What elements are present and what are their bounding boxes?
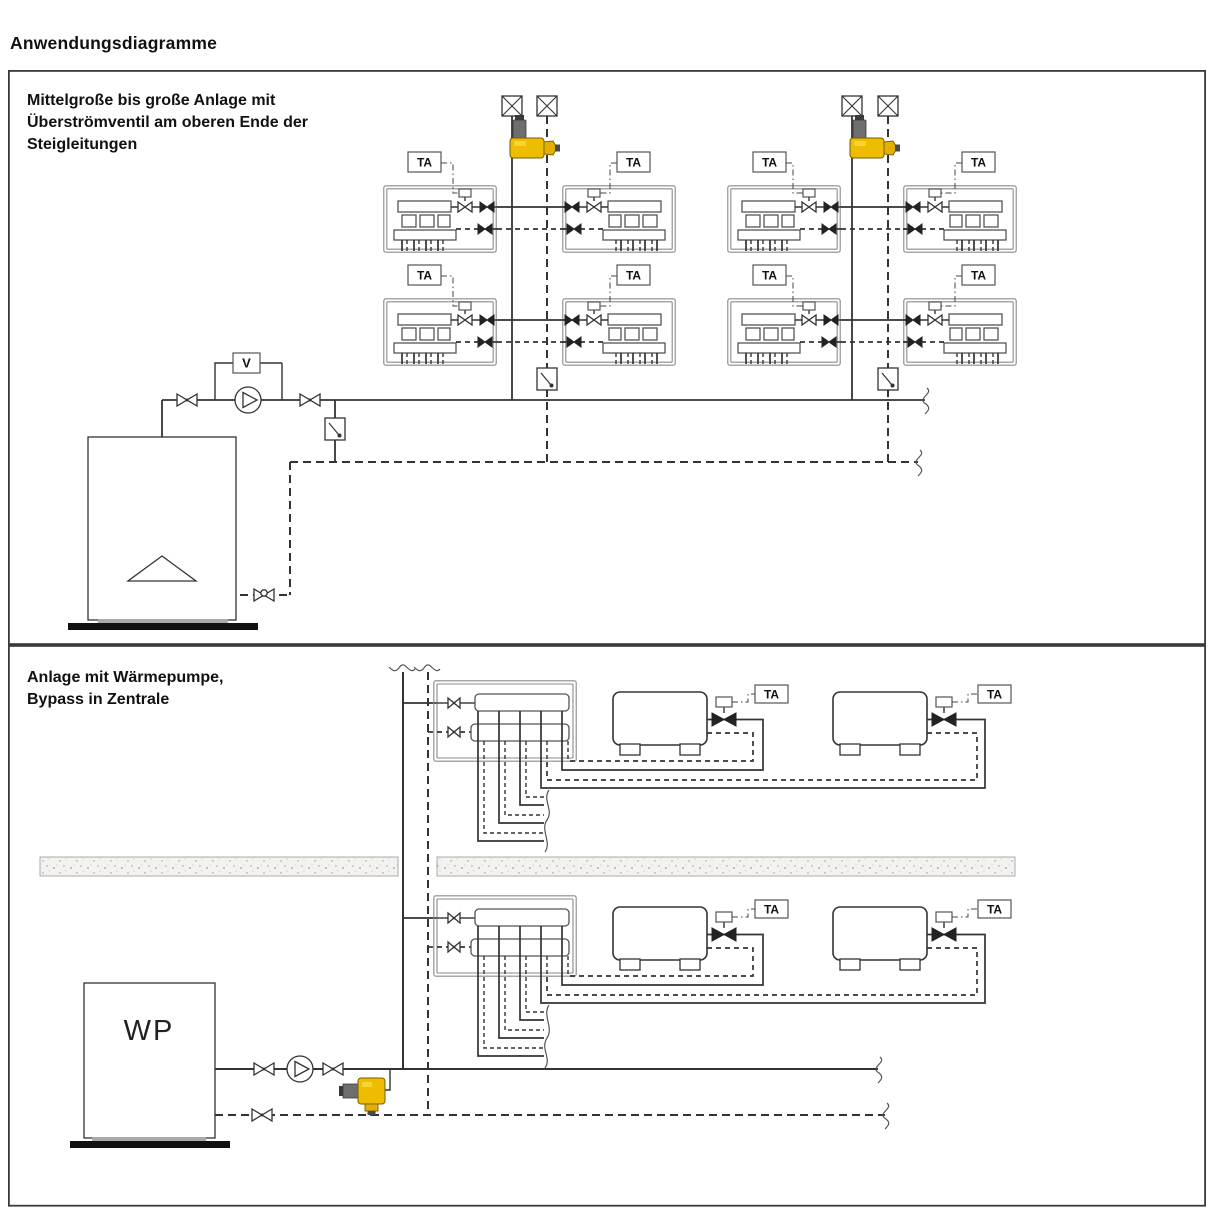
- shutoff-valve-icon: [300, 394, 320, 406]
- svg-text:TA: TA: [987, 688, 1002, 702]
- svg-text:TA: TA: [762, 156, 777, 170]
- valve-actuator: [716, 912, 732, 922]
- fan-coil-unit: [613, 692, 707, 755]
- valve-actuator: [936, 697, 952, 707]
- panel-1-title-line-3: Steigleitungen: [27, 136, 137, 153]
- riser-pair-2: [842, 96, 900, 462]
- radiator-group: [903, 299, 1016, 365]
- bypass-branch: [325, 400, 345, 462]
- svg-text:TA: TA: [971, 156, 986, 170]
- ta-label: TA: [962, 265, 995, 285]
- ta-label: TA: [962, 152, 995, 172]
- svg-text:TA: TA: [626, 269, 641, 283]
- ta-label: TA: [755, 685, 788, 703]
- shutoff-valve-icon: [252, 1109, 272, 1121]
- svg-text:TA: TA: [762, 269, 777, 283]
- overflow-valve-icon: [510, 115, 560, 158]
- svg-text:TA: TA: [626, 156, 641, 170]
- radiator-group: [384, 186, 497, 252]
- panel-2-diagram: Anlage mit Wärmepumpe, Bypass in Zentral…: [8, 645, 1206, 1207]
- supply-pipe: [215, 1056, 882, 1083]
- air-vent-icon: [502, 96, 522, 116]
- ta-label: TA: [408, 152, 441, 172]
- pipe-break-icon: [923, 388, 929, 414]
- supply-pipe: [162, 400, 925, 437]
- drain-valve-icon: [254, 589, 274, 601]
- balancing-valve-icon: [537, 368, 557, 390]
- thermostatic-valve-icon: [932, 928, 956, 941]
- pump-icon: [235, 387, 261, 413]
- ta-label: TA: [753, 265, 786, 285]
- radiator-group: [728, 186, 841, 252]
- air-vent-icon: [842, 96, 862, 116]
- floor-heating-manifold: [434, 681, 576, 762]
- shutoff-valve-icon: [177, 394, 197, 406]
- pipe-break-icon: [545, 1005, 550, 1068]
- balancing-valve-icon: [325, 418, 345, 440]
- boiler-base: [68, 623, 258, 630]
- fan-coil-unit: [833, 907, 927, 970]
- ta-label: TA: [978, 685, 1011, 703]
- radiator-group: [562, 299, 675, 365]
- svg-text:TA: TA: [971, 269, 986, 283]
- svg-text:TA: TA: [764, 688, 779, 702]
- panel-1-title: Mittelgroße bis große Anlage mit Überstr…: [27, 92, 308, 153]
- bypass-overflow-valve-icon: [339, 1078, 385, 1115]
- pump-icon: [287, 1056, 313, 1082]
- air-vent-icon: [537, 96, 557, 116]
- pipe-break-icon: [389, 665, 415, 671]
- shutoff-valve-icon: [323, 1063, 343, 1075]
- heat-pump-plinth: [92, 1137, 206, 1141]
- shutoff-valve-icon: [254, 1063, 274, 1075]
- overflow-valve-icon: [850, 115, 900, 158]
- heat-pump-base: [70, 1141, 230, 1148]
- heat-pump-unit: WP: [70, 983, 230, 1148]
- panel-1-diagram: Mittelgroße bis große Anlage mit Überstr…: [8, 70, 1206, 645]
- central-risers: [389, 665, 440, 1115]
- return-pipe: [240, 462, 918, 601]
- floor-branch-pipes: [497, 207, 908, 342]
- flow-indicator-label: V: [242, 356, 251, 371]
- central-bypass: [339, 1069, 390, 1116]
- ta-label: TA: [408, 265, 441, 285]
- floor-slab: [40, 857, 1015, 876]
- valve-actuator: [716, 697, 732, 707]
- panel-1-title-line-2: Überströmventil am oberen Ende der: [27, 112, 308, 131]
- radiator-group: [728, 299, 841, 365]
- page-title: Anwendungsdiagramme: [10, 33, 217, 54]
- fan-coil-unit: [833, 692, 927, 755]
- svg-text:TA: TA: [417, 269, 432, 283]
- ta-label: TA: [755, 900, 788, 918]
- riser-pair-1: [502, 96, 560, 462]
- fan-coil-unit: [613, 907, 707, 970]
- thermostatic-valve-icon: [712, 713, 736, 726]
- floor-heating-manifold: [434, 896, 576, 977]
- panel-1-title-line-1: Mittelgroße bis große Anlage mit: [27, 92, 276, 109]
- ta-label: TA: [978, 900, 1011, 918]
- air-vent-icon: [878, 96, 898, 116]
- svg-text:TA: TA: [764, 903, 779, 917]
- thermostatic-valve-icon: [932, 713, 956, 726]
- svg-text:TA: TA: [987, 903, 1002, 917]
- pump-assembly: V: [177, 353, 320, 413]
- pipe-break-icon: [545, 790, 550, 852]
- thermostatic-valve-icon: [712, 928, 736, 941]
- return-pipe: [215, 1103, 889, 1129]
- ta-label: TA: [753, 152, 786, 172]
- ta-label: TA: [617, 152, 650, 172]
- balancing-valve-icon: [878, 368, 898, 390]
- panel-2-title: Anlage mit Wärmepumpe, Bypass in Zentral…: [27, 669, 223, 708]
- svg-text:TA: TA: [417, 156, 432, 170]
- panel-2-title-line-2: Bypass in Zentrale: [27, 691, 169, 708]
- radiator-group: [562, 186, 675, 252]
- radiator-group: [384, 299, 497, 365]
- radiator-groups: [384, 186, 1016, 365]
- pipe-break-icon: [414, 665, 440, 671]
- panel-2-title-line-1: Anlage mit Wärmepumpe,: [27, 669, 223, 686]
- heat-pump-label: WP: [124, 1015, 175, 1047]
- valve-actuator: [936, 912, 952, 922]
- fan-coil-units: [613, 692, 956, 970]
- ta-label: TA: [617, 265, 650, 285]
- radiator-group: [903, 186, 1016, 252]
- boiler: [68, 437, 258, 630]
- application-diagrams-page: Anwendungsdiagramme: [0, 0, 1214, 1214]
- boiler-plinth: [98, 619, 228, 623]
